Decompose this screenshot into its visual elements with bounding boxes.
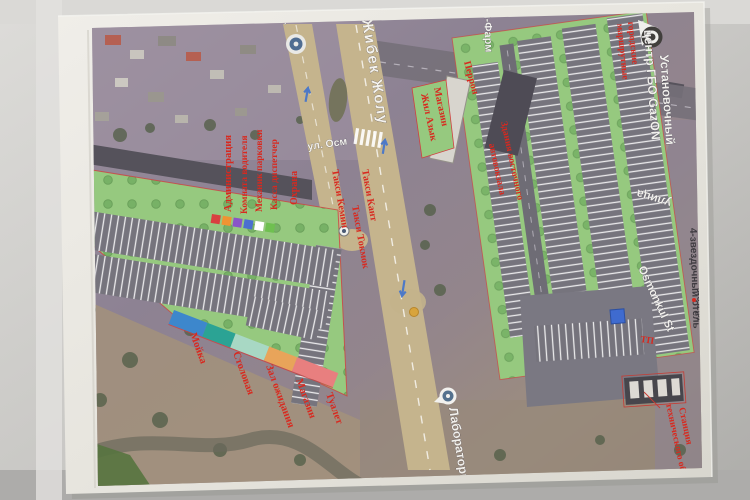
square-6 <box>265 223 275 233</box>
label-admin: Администрация <box>223 135 234 212</box>
label-tp: ТП <box>640 335 656 347</box>
printed-map: Жибек Жолу Лаборатория ул. Осм ул улица … <box>68 5 750 500</box>
square-1 <box>211 214 221 224</box>
square-5 <box>254 221 264 231</box>
apron-row <box>534 318 644 361</box>
amber-dot <box>410 308 419 317</box>
wall-highlight <box>36 0 62 500</box>
square-3 <box>232 217 242 227</box>
location-pin-icon <box>286 34 306 54</box>
blue-box <box>610 309 625 324</box>
label-cashier: Касса диспетчер <box>270 139 280 210</box>
place-label-farm: н-Фарм <box>481 12 494 53</box>
label-security-building: Охрана <box>289 171 300 205</box>
square-2 <box>221 216 231 226</box>
photo-of-site-plan: Жибек Жолу Лаборатория ул. Осм ул улица … <box>0 0 750 500</box>
hotel-red-dot <box>692 298 696 302</box>
label-mechanic: Механик парковки <box>255 129 265 212</box>
road-bulge <box>390 289 426 315</box>
label-driver-room: Комната водителя <box>240 135 250 214</box>
site-plan-svg: Жибек Жолу Лаборатория ул. Осм ул улица … <box>0 0 750 500</box>
square-4 <box>243 219 253 229</box>
